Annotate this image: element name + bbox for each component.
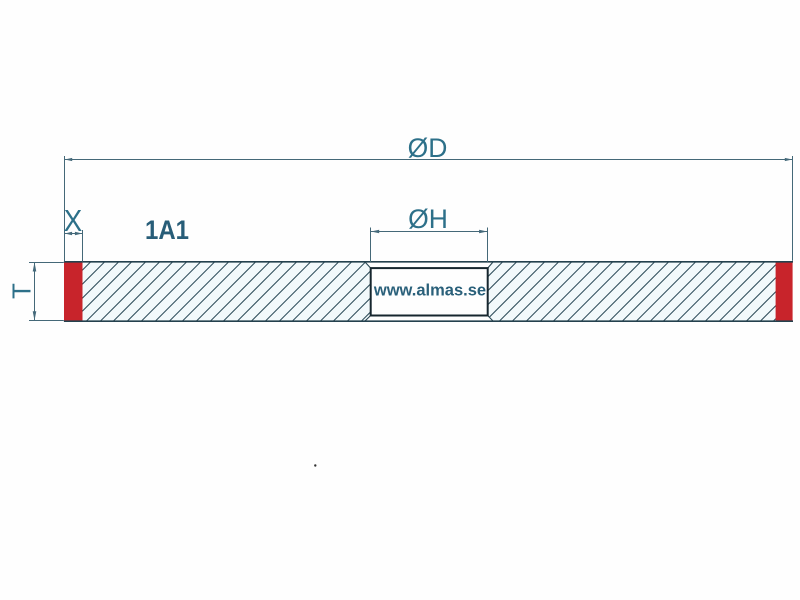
svg-text:ØD: ØD [408, 133, 448, 163]
svg-text:ØH: ØH [408, 204, 448, 234]
svg-text:X: X [64, 203, 83, 238]
svg-text:www.almas.se: www.almas.se [373, 282, 486, 300]
svg-text:T: T [7, 283, 37, 299]
svg-text:1A1: 1A1 [145, 215, 189, 245]
